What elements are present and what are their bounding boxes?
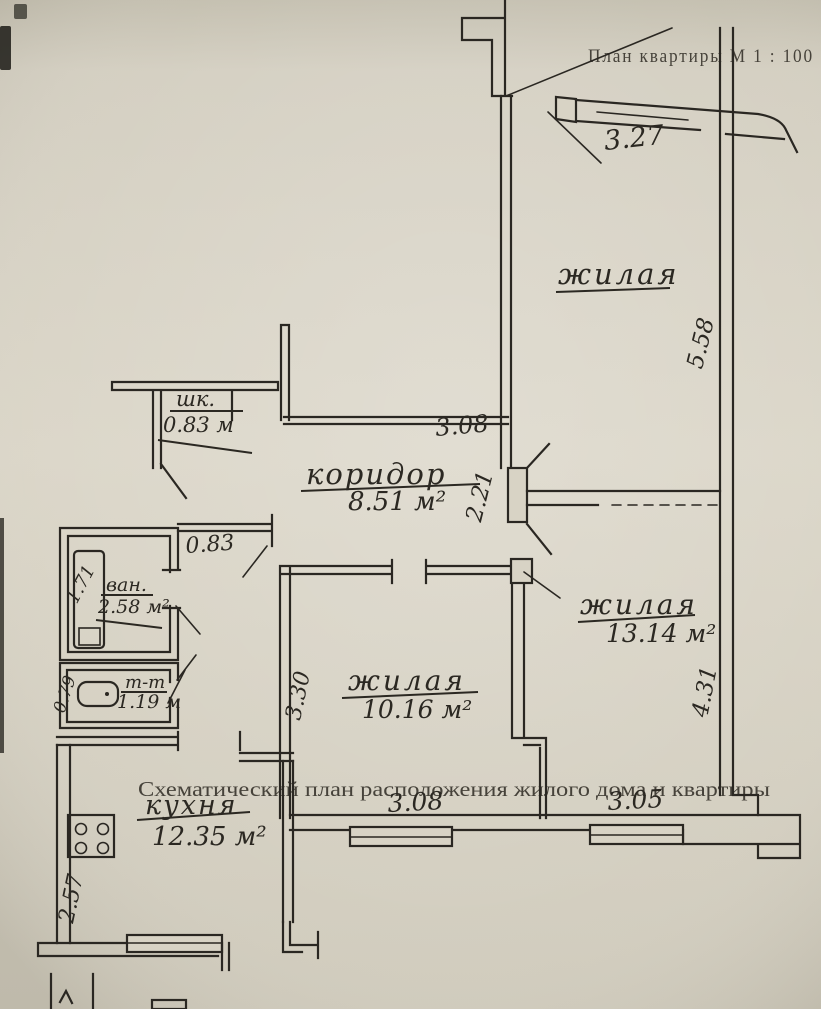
living-top-label: жилая (558, 257, 680, 291)
scan-blob-1 (0, 26, 11, 70)
living-right-area: 13.14 м² (606, 619, 716, 648)
toilet-area: 1.19 м (117, 691, 181, 713)
living-mid-corner-cap (511, 559, 532, 583)
dim-top-window: 3.27 (602, 120, 666, 157)
toilet-label: т-т (125, 672, 165, 693)
living-mid-label: жилая (348, 664, 466, 697)
dim-bottom-mid: 3.08 (387, 786, 444, 818)
scan-blob-2 (14, 4, 27, 19)
dim-bottom-right: 3.05 (607, 784, 664, 816)
corridor-area: 8.51 м² (348, 487, 446, 517)
dim-vestibule: 0.83 (185, 531, 236, 559)
toilet-bowl-dot (105, 692, 109, 696)
bathroom-area: 2.58 м² (97, 596, 170, 618)
living-mid-area: 10.16 м² (362, 695, 472, 724)
dim-corridor-top: 3.08 (434, 409, 490, 442)
bathroom-label: ван. (106, 574, 147, 596)
closet-area: 0.83 м (163, 413, 234, 437)
scanned-floor-plan: План квартиры М 1 : 100 Схематический пл… (0, 0, 821, 1009)
closet-label: шк. (176, 387, 215, 411)
kitchen-area: 12.35 м² (152, 822, 267, 852)
scan-edge-strip (0, 518, 4, 753)
floor-plan-canvas: План квартиры М 1 : 100 Схематический пл… (0, 0, 821, 1009)
window-band-cap (556, 97, 576, 122)
door-221-frame (508, 468, 527, 522)
